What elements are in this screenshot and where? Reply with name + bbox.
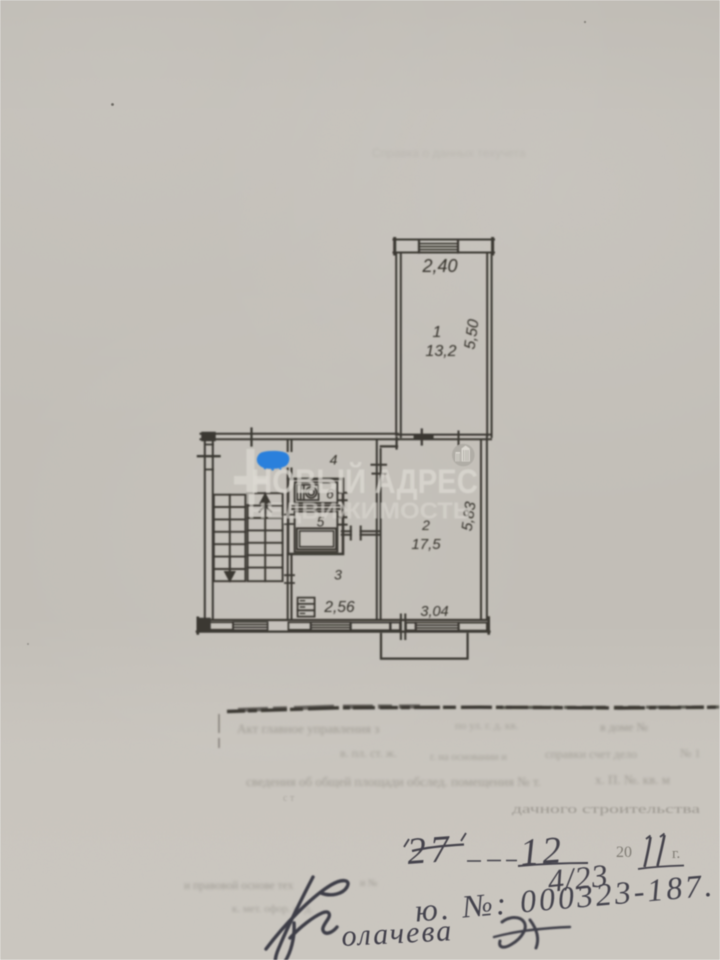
svg-text:г. на основании и: г. на основании и (430, 752, 507, 763)
svg-text:НОВЫЙ АДРЕС: НОВЫЙ АДРЕС (251, 462, 478, 501)
svg-text:х. П. №. кв. м: х. П. №. кв. м (595, 772, 670, 787)
svg-text:с т: с т (283, 793, 295, 804)
svg-text:и №: и № (360, 878, 377, 889)
svg-text:дачного строительства: дачного строительства (512, 802, 701, 816)
svg-text:Справка о данных техучета: Справка о данных техучета (372, 146, 526, 160)
svg-text:и правовой основе тех: и правовой основе тех (184, 880, 294, 892)
svg-text:17,5: 17,5 (411, 536, 441, 553)
svg-text:г.: г. (672, 846, 680, 862)
svg-text:1: 1 (433, 324, 442, 341)
svg-text:20: 20 (616, 844, 632, 861)
svg-text:Акт главное управления з: Акт главное управления з (237, 721, 379, 736)
svg-text:в. пл. ст. ж.: в. пл. ст. ж. (340, 746, 397, 760)
svg-text:2,40: 2,40 (421, 256, 457, 276)
svg-text:олачева: олачева (341, 914, 454, 953)
svg-text:3: 3 (334, 567, 342, 583)
svg-text:13,2: 13,2 (425, 343, 456, 360)
svg-text:по ул. г. д. кв.: по ул. г. д. кв. (455, 720, 519, 732)
svg-text:3,04: 3,04 (420, 604, 448, 620)
svg-text:в доме №: в доме № (600, 720, 648, 734)
svg-text:справки счет дело: справки счет дело (545, 747, 637, 761)
svg-text:2,56: 2,56 (323, 599, 355, 616)
svg-text:сведения об общей площади обсл: сведения об общей площади обслед. помеще… (246, 774, 541, 789)
svg-text:НЕДВИЖИМОСТЬ: НЕДВИЖИМОСТЬ (248, 498, 471, 524)
svg-text:№ 1: № 1 (680, 746, 700, 760)
